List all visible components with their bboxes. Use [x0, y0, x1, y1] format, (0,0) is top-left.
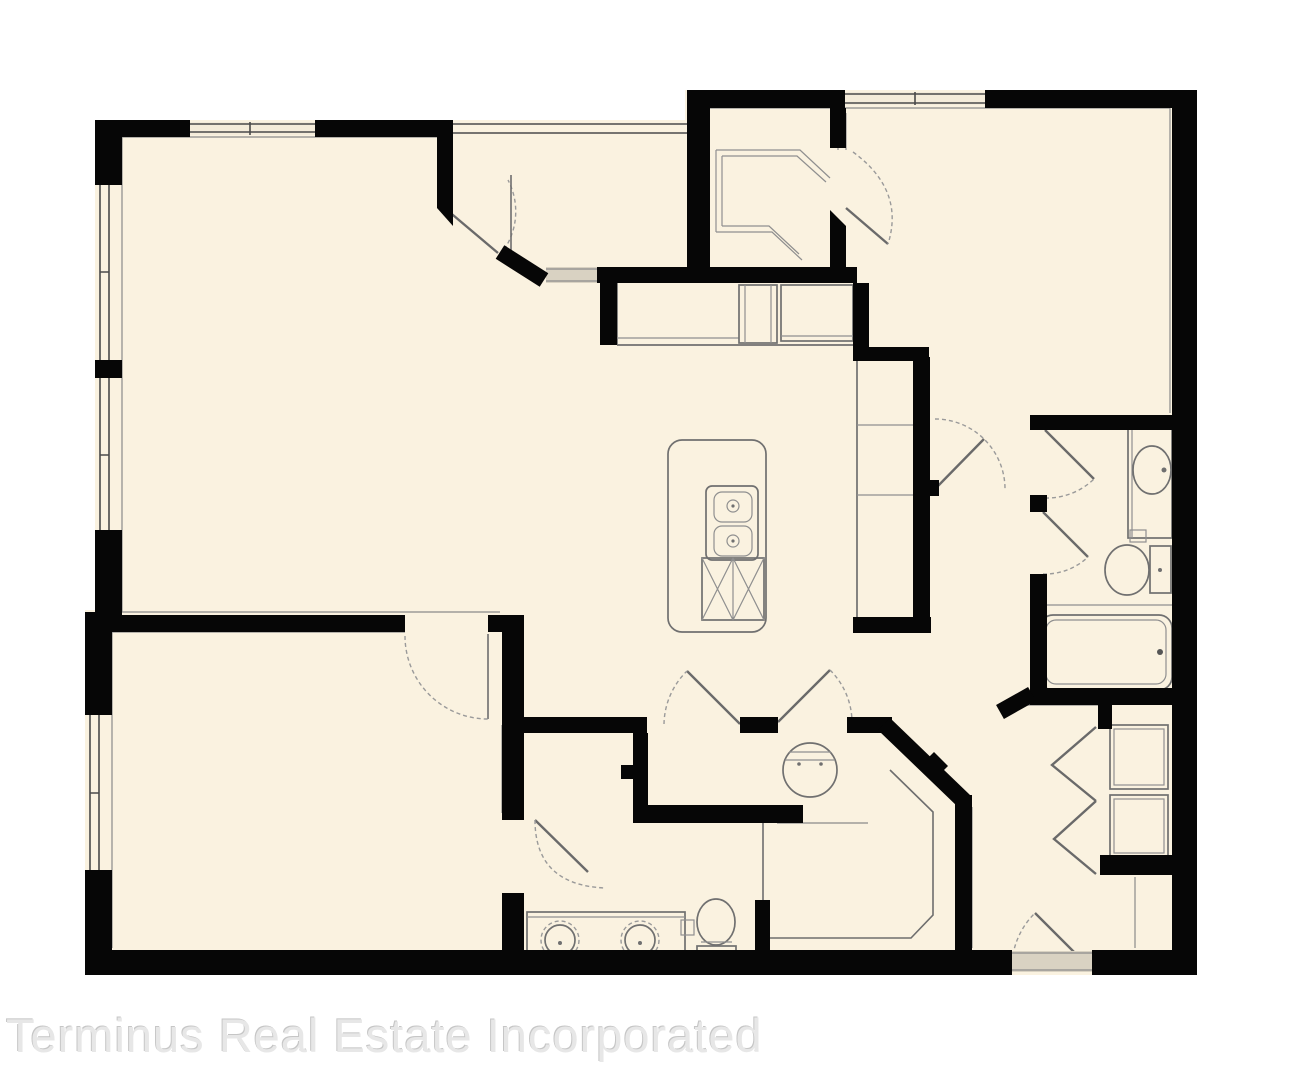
entry-threshold	[1012, 951, 1092, 972]
watermark-text: Terminus Real Estate Incorporated	[6, 1008, 1291, 1063]
floor-plan-drawing	[0, 0, 1295, 1080]
floor-plan-page: Terminus Real Estate Incorporated	[0, 0, 1295, 1080]
window-top-right-icon	[845, 92, 985, 105]
cased-opening	[546, 267, 597, 283]
window-top-left-icon	[190, 122, 315, 135]
floor-area	[85, 90, 1197, 975]
